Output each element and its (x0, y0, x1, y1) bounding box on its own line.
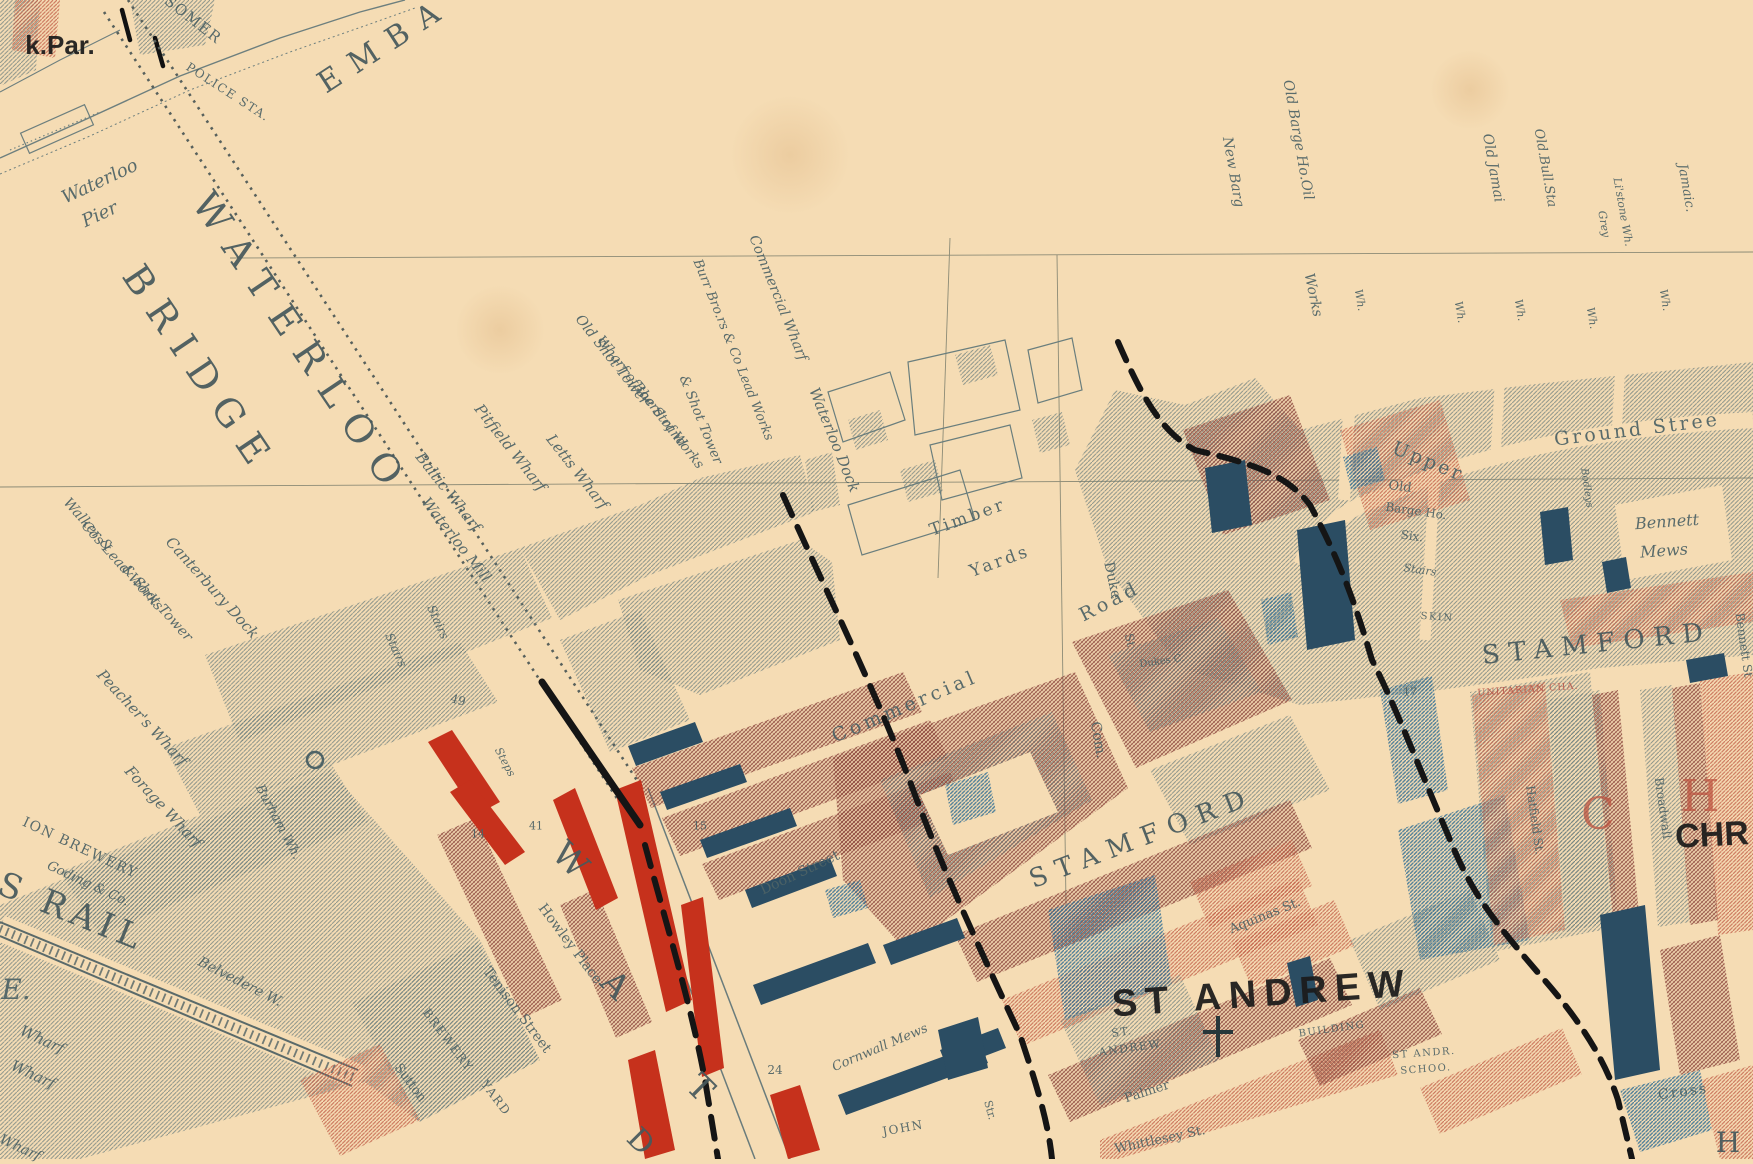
map-label-e: E. (1, 976, 30, 1004)
map-label-wh: Wh. (1353, 288, 1368, 311)
map-label-old-jamai: Old Jamai (1480, 133, 1506, 204)
map-label-chr: CHR (1674, 816, 1749, 854)
map-label-doon-street: Doon Street (758, 849, 842, 898)
map-label-cross: Cross (1657, 1082, 1709, 1103)
map-label-c: C (1581, 793, 1615, 837)
historical-map: k.Par.SOMERPOLICE STA.EMBAWaterlooPierWA… (0, 0, 1753, 1159)
map-label-yard: YARD (479, 1078, 513, 1117)
map-label-stamford: STAMFORD (1026, 783, 1258, 893)
map-label-unitarian-cha: UNITARIAN CHA. (1477, 682, 1579, 699)
map-label-waterloo-dock: Waterloo Dock (806, 386, 862, 495)
map-label-wh: Wh. (1585, 306, 1600, 329)
map-label-cornwall-mews: Cornwall Mews (830, 1022, 929, 1074)
map-label-tenison-street: Tenison Street (480, 965, 553, 1056)
map-label-st-andrew: ST ANDREW (1111, 965, 1414, 1024)
map-label-k-par: k.Par. (25, 32, 94, 58)
labels-layer: k.Par.SOMERPOLICE STA.EMBAWaterlooPierWA… (0, 0, 1753, 1159)
map-label-broadwall: Broadwall (1653, 777, 1673, 840)
map-label-hatfield-st: Hatfield St. (1524, 785, 1546, 856)
map-label-wharf: Wharf (9, 1058, 58, 1091)
map-label-stairs: Stairs (425, 603, 451, 641)
map-label-timber: Timber (928, 496, 1009, 539)
map-label-palmer: Palmer (1123, 1079, 1171, 1106)
map-label-com: Com. (1088, 721, 1108, 760)
map-label-sutton: Sutton (392, 1062, 429, 1105)
map-label-grey: Grey (1596, 210, 1611, 238)
map-label-whittlesey-st: Whittlesey St. (1114, 1124, 1207, 1156)
map-label-skin: SKIN (1420, 612, 1454, 624)
map-label-peacher-s-wharf: Peacher's Wharf (94, 667, 190, 768)
map-label-15: 15 (693, 821, 707, 832)
map-label-commercial-wharf: Commercial Wharf (746, 233, 809, 362)
map-label-wh: Wh. (1453, 300, 1468, 323)
map-label-letts-wharf: Letts Wharf (543, 432, 610, 512)
map-label-14: 14 (471, 829, 485, 840)
map-label-41: 41 (529, 821, 543, 832)
map-label-st-andr: ST ANDR. (1392, 1047, 1456, 1061)
map-label-st: St (1123, 632, 1137, 647)
map-label-wharf: Wharf (18, 1023, 67, 1056)
map-label-new-barg: New Barg (1220, 136, 1246, 209)
map-label-old-bull-sta: Old.Bull.Sta (1532, 128, 1559, 209)
map-label-police-sta: POLICE STA. (184, 61, 272, 124)
map-label-barge-ho: Barge Ho. (1385, 501, 1448, 521)
map-label-somer: SOMER (162, 0, 225, 47)
map-label-commercial: Commercial (829, 668, 980, 747)
map-label-stamford: STAMFORD (1481, 619, 1713, 669)
map-label-bodleys: Bodleys (1578, 468, 1593, 509)
map-label-d: D (621, 1123, 659, 1161)
map-label-stairs: Stairs (1403, 562, 1437, 577)
map-label-pier: Pier (79, 199, 120, 231)
map-label-st: ST. (1111, 1025, 1134, 1039)
map-label-dukes-c: Dukes C. (1139, 654, 1185, 670)
map-label-brewery: BREWERY (421, 1007, 476, 1074)
map-label-t: T (680, 1068, 720, 1108)
map-label-howley-place: Howley Place (535, 901, 604, 986)
map-label-49: 49 (449, 692, 467, 708)
map-label-stairs: Stairs (383, 631, 409, 669)
map-label-emba: EMBA (313, 0, 457, 99)
map-label-old: Old (1388, 479, 1413, 495)
map-label-yards: Yards (968, 543, 1033, 580)
map-label-pitfield-wharf: Pitfield Wharf (472, 402, 549, 495)
map-label-forage-wharf: Forage Wharf (122, 764, 204, 851)
map-label-upper: Upper (1389, 439, 1466, 485)
map-label-24: 24 (767, 1064, 782, 1076)
map-label-andrew: ANDREW (1098, 1038, 1162, 1058)
map-label-li-stone-wh: Li'stone Wh. (1612, 177, 1635, 247)
map-label-wh: Wh. (1658, 288, 1673, 311)
map-label-w: W (546, 836, 595, 885)
map-label-waterloo: WATERLOO (186, 185, 419, 505)
map-label-h: H (1681, 775, 1719, 819)
map-label-belvedere-w: Belvedere W. (196, 955, 285, 1009)
map-label-wh: Wh. (1513, 298, 1528, 321)
map-label-schoo: SCHOO. (1400, 1063, 1452, 1077)
map-label-mews: Mews (1640, 541, 1689, 560)
map-label-str: Str. (982, 1099, 998, 1121)
map-label-bennett: Bennett (1634, 512, 1699, 532)
map-label-ground-stree: Ground Stree (1553, 410, 1721, 449)
map-label-ion-brewery: ION BREWERY (20, 815, 139, 881)
map-label-john: JOHN (881, 1118, 924, 1137)
map-label-aquinas-st: Aquinas St. (1228, 896, 1303, 936)
map-label-old-barge-ho-oil: Old Barge Ho.Oil (1281, 79, 1316, 201)
map-label-17: 17 (1403, 687, 1417, 698)
map-label-shot-tower: & Shot Tower (119, 562, 195, 644)
map-label-six: Six. (1400, 528, 1424, 543)
map-label-h: H (1716, 1129, 1740, 1157)
map-label-works: Works (1302, 272, 1325, 318)
map-label-jamaic: Jamaic. (1675, 163, 1696, 213)
map-label-bennett-st: Bennett St (1734, 612, 1753, 678)
map-label-burham-wh: Burham Wh. (253, 782, 303, 861)
map-label-steps: Steps (493, 746, 517, 779)
map-label-waterloo: Waterloo (59, 157, 141, 208)
map-label-building: BUILDING (1298, 1020, 1366, 1039)
